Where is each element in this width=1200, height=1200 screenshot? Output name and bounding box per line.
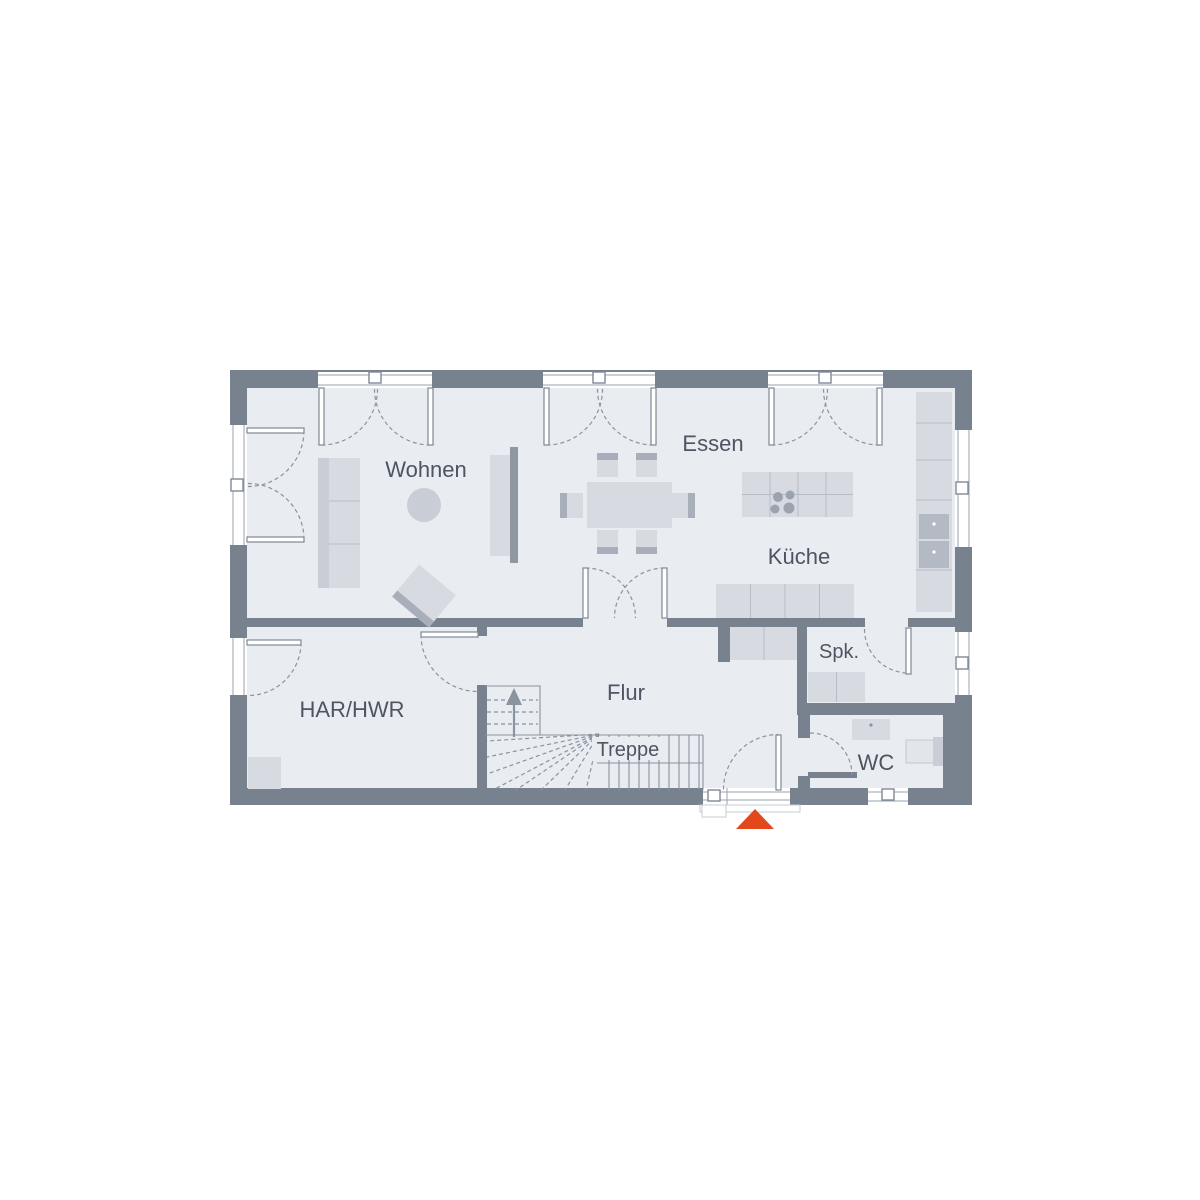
door-leaf (247, 640, 301, 645)
faucet-dot (869, 723, 872, 726)
door-leaf (319, 388, 324, 445)
dining-chair (560, 493, 583, 518)
room-label-wohnen: Wohnen (385, 457, 467, 482)
floor-plan-page: Wohnen Essen Küche Flur Treppe HAR/HWR S… (0, 0, 1200, 1200)
oven-icon (919, 541, 949, 568)
utility-equipment (248, 757, 281, 789)
wall-wc-west-upper (798, 715, 810, 738)
wall-spk-north (908, 618, 955, 627)
floor-plan-drawing: Wohnen Essen Küche Flur Treppe HAR/HWR S… (0, 0, 1200, 1200)
sofa-backrest (318, 458, 329, 588)
oven-icon (919, 514, 949, 539)
chair-back (597, 453, 618, 460)
room-label-kueche: Küche (768, 544, 830, 569)
window-sash-marker (369, 372, 381, 383)
pantry-shelves (808, 672, 865, 702)
room-label-wc: WC (858, 750, 895, 775)
wall-spk-west (797, 627, 807, 708)
window-right-kueche (955, 430, 972, 547)
burner (786, 491, 795, 500)
sofa (318, 458, 360, 588)
door-leaf (247, 428, 304, 433)
burner (771, 505, 780, 514)
entrance-door-sidelight (700, 788, 800, 817)
dining-chair (597, 453, 618, 477)
door-leaf (421, 632, 478, 637)
wc-toilet (906, 737, 943, 766)
chair-back (597, 547, 618, 554)
door-leaf (808, 772, 857, 778)
wc-sink (852, 719, 890, 740)
door-leaf (769, 388, 774, 445)
door-leaf (776, 735, 781, 790)
dining-table (587, 482, 672, 528)
dining-chair (636, 453, 657, 477)
burner (773, 492, 783, 502)
chair-back (688, 493, 695, 518)
round-rug (407, 488, 441, 522)
toilet-bowl (906, 740, 934, 763)
door-leaf (877, 388, 882, 445)
kitchen-island (742, 472, 853, 517)
room-label-flur: Flur (607, 680, 645, 705)
tv-sideboard (490, 447, 518, 563)
window-sash-marker (593, 372, 605, 383)
wall-stub-wardrobe (718, 627, 730, 662)
window-top-essen-left (543, 372, 655, 388)
door-leaf (906, 628, 911, 674)
outer-wall-bottom (230, 788, 972, 805)
room-label-spk: Spk. (819, 641, 859, 663)
wall-wc-east (943, 715, 955, 788)
window-left-wohnen (230, 425, 247, 545)
window-sash-marker (819, 372, 831, 383)
wall-wohnen-south (247, 618, 583, 627)
tall-cabinet-body (916, 392, 952, 612)
door-leaf (544, 388, 549, 445)
room-label-treppe: Treppe (597, 739, 660, 761)
chair-back (560, 493, 567, 518)
sink-basin (852, 719, 890, 740)
sideboard-body (490, 455, 510, 556)
wall-kueche-south (667, 618, 865, 627)
door-leaf (651, 388, 656, 445)
window-left-har (230, 638, 247, 695)
window-right-spk (955, 632, 972, 695)
window-sash-marker (882, 789, 894, 800)
chair-back (636, 547, 657, 554)
window-top-essen-right (768, 372, 883, 388)
window-sash-marker (708, 790, 720, 801)
door-leaf (583, 568, 588, 618)
dining-chair (597, 530, 618, 554)
wall-stairs-west (477, 685, 487, 788)
oven-knob (932, 522, 935, 525)
window-bottom-wc (868, 788, 908, 805)
room-label-har-hwr: HAR/HWR (299, 697, 404, 722)
door-leaf (247, 537, 304, 542)
burner (784, 503, 795, 514)
tv-panel (510, 447, 518, 563)
door-leaf (428, 388, 433, 445)
room-label-essen: Essen (682, 431, 743, 456)
door-leaf (662, 568, 667, 618)
oven-knob (932, 550, 935, 553)
hall-wardrobe (730, 627, 797, 660)
kitchen-tall-cabinets (916, 392, 952, 612)
wall-spk-wc-divider (797, 703, 955, 715)
kitchen-counter (716, 584, 854, 618)
toilet-tank (933, 737, 943, 766)
entrance-exterior-step-small (702, 805, 726, 817)
dining-chair (636, 530, 657, 554)
window-sash-marker (956, 657, 968, 669)
dining-chair (672, 493, 695, 518)
window-top-wohnen (318, 372, 432, 388)
chair-back (636, 453, 657, 460)
window-sash-marker (956, 482, 968, 494)
window-sash-marker (231, 479, 243, 491)
